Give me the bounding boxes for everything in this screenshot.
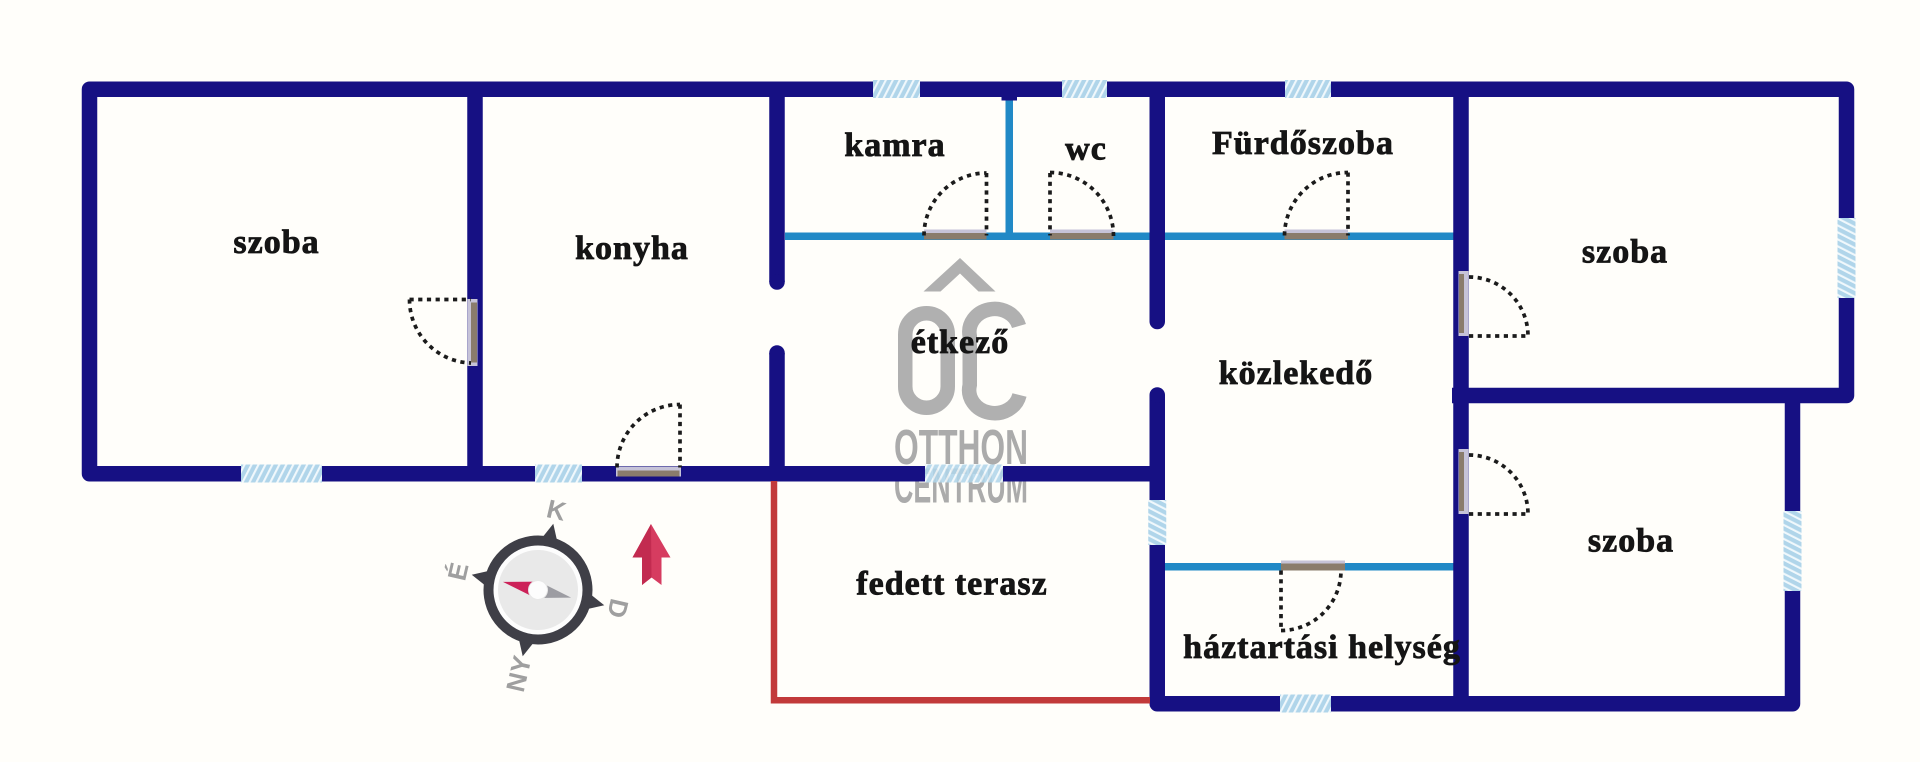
svg-text:háztartási helység: háztartási helység [1183, 629, 1461, 666]
svg-text:wc: wc [1065, 131, 1107, 168]
svg-text:kamra: kamra [844, 127, 945, 164]
svg-text:szoba: szoba [1588, 523, 1674, 560]
svg-text:konyha: konyha [575, 230, 689, 267]
svg-text:fedett terasz: fedett terasz [856, 566, 1047, 603]
svg-text:szoba: szoba [233, 224, 319, 261]
svg-text:szoba: szoba [1582, 234, 1668, 271]
svg-text:közlekedő: közlekedő [1219, 355, 1373, 392]
svg-text:étkező: étkező [911, 324, 1010, 361]
svg-text:Fürdőszoba: Fürdőszoba [1212, 125, 1394, 162]
